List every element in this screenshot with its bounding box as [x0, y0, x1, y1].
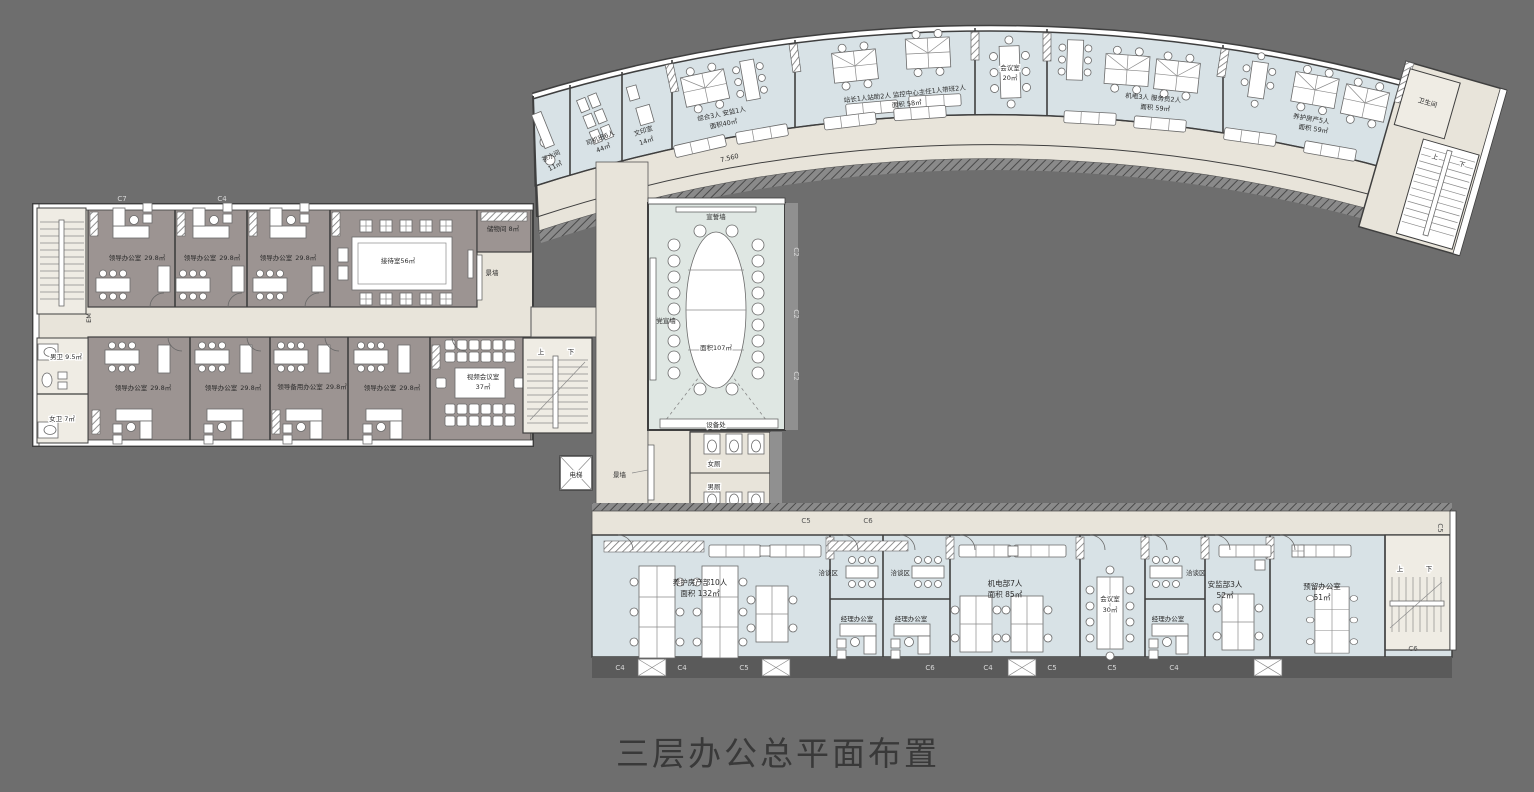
- men-wc-label: 男厕: [708, 483, 722, 491]
- mech-dept-label: 机电部7人: [988, 578, 1023, 588]
- elevator-label: 电梯: [570, 470, 584, 479]
- video-conference-area: 37㎡: [476, 382, 491, 391]
- floor-plan-canvas: 茶水间 11㎡ 司机班6人 44㎡ 文印室 14㎡ 综合3人 安监1人 面积40…: [0, 0, 1534, 792]
- grid-label: C4: [677, 664, 687, 672]
- left-wing: 男卫 9.5㎡ 女卫 7㎡ EM: [33, 195, 533, 446]
- men-wc-label: 男卫 9.5㎡: [50, 352, 82, 361]
- feature-wall-label: 景墙: [613, 470, 627, 479]
- bottom-stair-block: [1385, 535, 1450, 650]
- negotiation-label: 洽谈区: [1186, 568, 1206, 577]
- grid-label: C4: [615, 664, 625, 672]
- feature-wall-label: 景墙: [486, 268, 500, 277]
- central-wc-block: 女厕 男厕: [690, 432, 782, 515]
- bottom-wing: 上 下 养护房产部10人 面积 132㎡ 洽谈区 洽谈区 洽谈区 经理办公室 经…: [592, 503, 1456, 678]
- leader-office-label: 领导办公室29.8㎡: [109, 253, 166, 262]
- curved-meeting-room-label: 会议室: [1000, 63, 1020, 72]
- party-wall: [650, 258, 656, 380]
- page-title: 三层办公总平面布置: [616, 734, 940, 773]
- feature-wall: [648, 445, 654, 500]
- reception-room-label: 接待室56㎡: [381, 256, 416, 265]
- safety-dept-label: 安监部3人: [1208, 579, 1243, 589]
- oath-wall-label: 宣誓墙: [706, 212, 726, 221]
- left-stairwell: [37, 208, 86, 314]
- leader-office-label: 领导办公室29.8㎡: [364, 383, 421, 392]
- maintenance-dept-area: 面积 132㎡: [680, 588, 720, 598]
- grid-label: C2: [792, 371, 800, 380]
- oath-wall: [676, 207, 756, 212]
- safety-dept-area: 52㎡: [1216, 591, 1234, 600]
- grid-label: C4: [217, 195, 227, 203]
- stair-down-label: 下: [1426, 565, 1433, 573]
- left-wc-block: 男卫 9.5㎡ 女卫 7㎡: [37, 338, 88, 443]
- grid-label: C5: [801, 517, 810, 525]
- grid-label: C6: [1408, 645, 1418, 653]
- video-conference-label: 视频会议室: [467, 372, 500, 381]
- manager-office-label: 经理办公室: [841, 614, 874, 623]
- central-corridor: [596, 162, 648, 515]
- negotiation-table: [912, 557, 944, 588]
- grid-label: C4: [983, 664, 993, 672]
- grid-label: C5: [1436, 523, 1444, 532]
- bottom-meeting-label: 会议室: [1100, 594, 1120, 603]
- leader-office-label: 领导办公室29.8㎡: [205, 383, 262, 392]
- leader-office-label: 领导办公室29.8㎡: [260, 253, 317, 262]
- grid-label: C7: [117, 195, 126, 203]
- manager-office-label: 经理办公室: [895, 614, 928, 623]
- curved-meeting-room-area: 20㎡: [1003, 73, 1018, 82]
- leader-office-label: 领导办公室29.8㎡: [115, 383, 172, 392]
- spare-office-label: 领导备用办公室29.8㎡: [277, 382, 347, 391]
- reserved-office-area: 51㎡: [1313, 593, 1331, 602]
- central-stairs: 上 下: [523, 338, 592, 433]
- bottom-corridor: [592, 511, 1452, 535]
- grid-label: C6: [863, 517, 873, 525]
- stair-down-label: 下: [568, 348, 575, 356]
- women-wc-label: 女卫 7㎡: [49, 414, 75, 423]
- bottom-meeting-area: 30㎡: [1103, 605, 1118, 614]
- grid-label: C6: [925, 664, 935, 672]
- party-wall-label: 党宣墙: [656, 316, 676, 325]
- negotiation-table: [846, 557, 878, 588]
- hall-area-label: 面积107㎡: [700, 343, 732, 352]
- maintenance-dept-label: 养护房产部10人: [673, 577, 728, 587]
- reserved-office-label: 预留办公室: [1303, 581, 1341, 591]
- mech-dept-area: 面积 85㎡: [988, 589, 1023, 599]
- negotiation-label: 洽谈区: [891, 568, 911, 577]
- em-label: EM: [85, 313, 93, 323]
- stair-up-label: 上: [538, 347, 545, 356]
- elevator: 电梯: [560, 456, 592, 490]
- grid-label: C2: [792, 247, 800, 256]
- storage-room-label: 储物间 8㎡: [487, 224, 520, 233]
- stair-up-label: 上: [1397, 564, 1404, 573]
- grid-label: C5: [739, 664, 748, 672]
- equipment-label: 设备处: [706, 420, 726, 429]
- grid-label: C2: [792, 309, 800, 318]
- grid-label: C4: [1169, 664, 1179, 672]
- leader-office-label: 领导办公室29.8㎡: [184, 253, 241, 262]
- bottom-wing-edge-band: [592, 503, 1452, 511]
- grid-label: C5: [1047, 664, 1056, 672]
- women-wc-label: 女厕: [708, 459, 722, 468]
- negotiation-label: 洽谈区: [819, 568, 839, 577]
- negotiation-table: [1150, 557, 1182, 588]
- grid-label: C5: [1107, 664, 1116, 672]
- manager-office-label: 经理办公室: [1152, 614, 1185, 623]
